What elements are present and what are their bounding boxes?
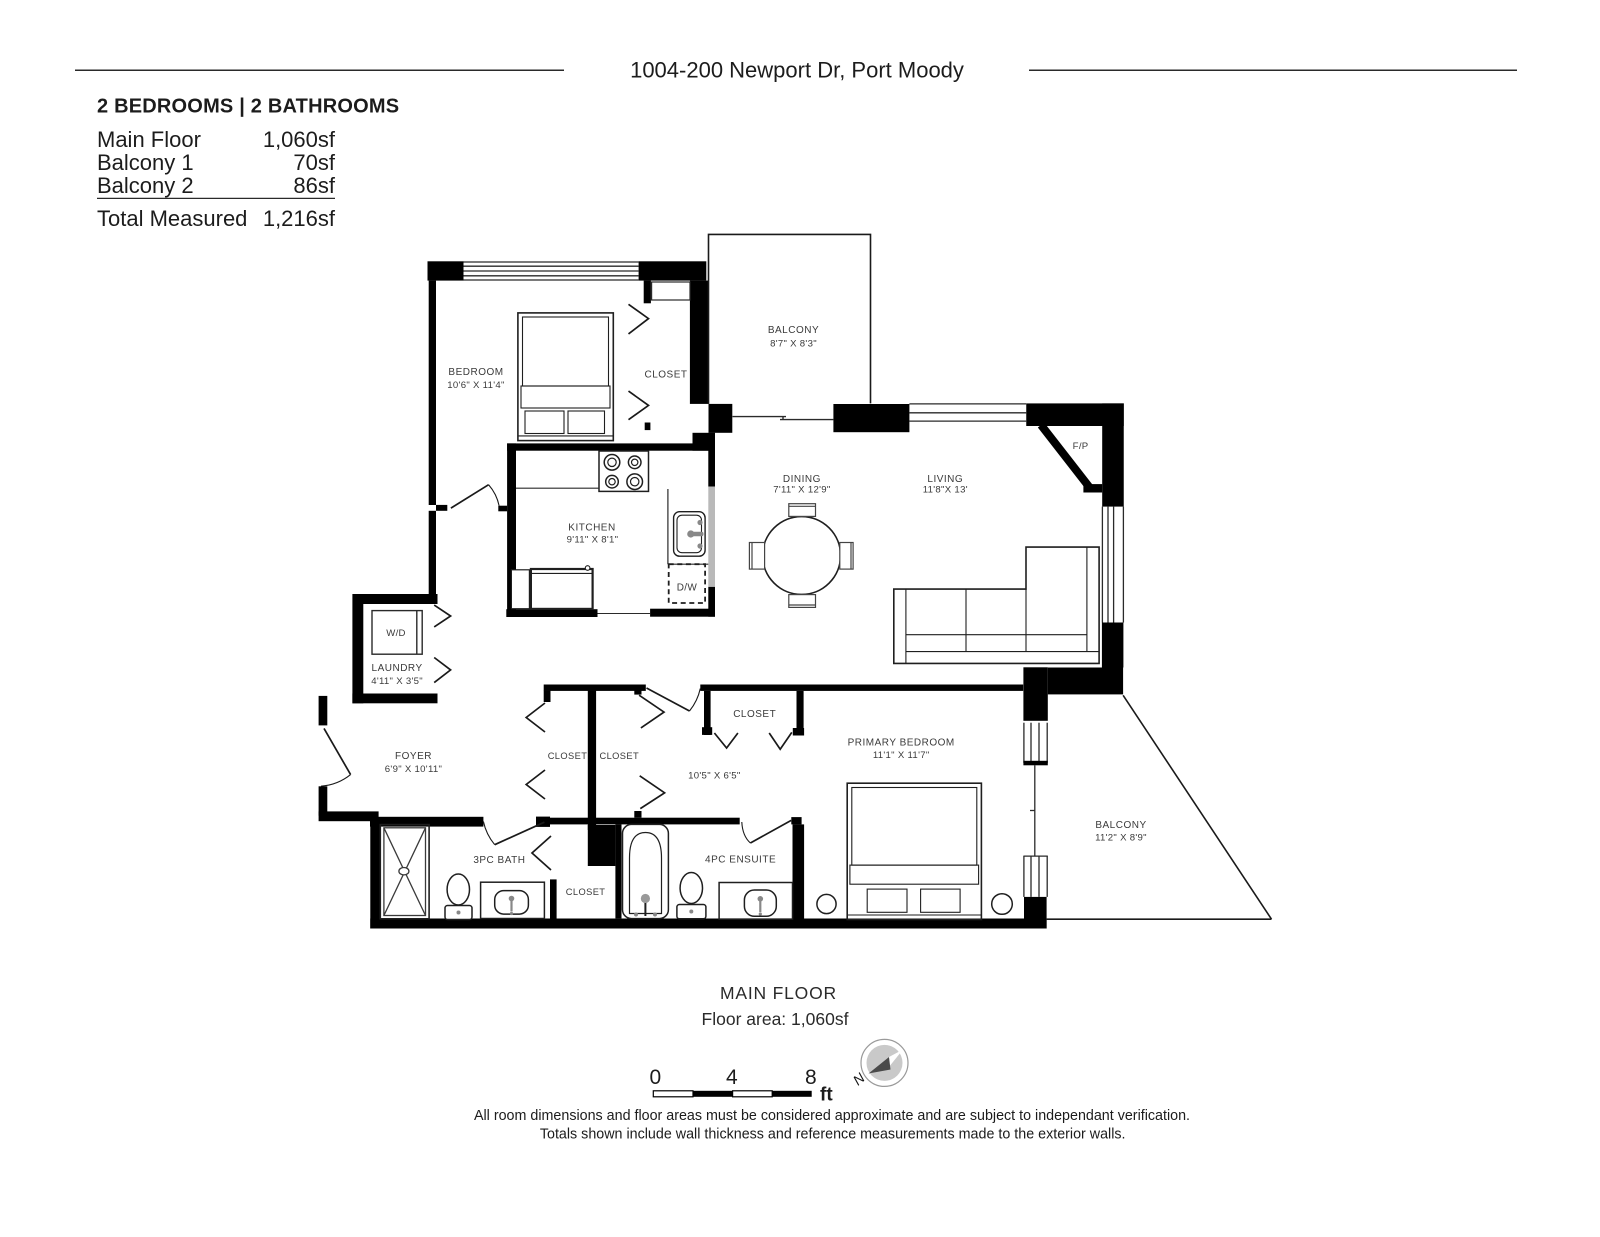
svg-text:Balcony 2: Balcony 2: [97, 173, 194, 198]
svg-text:11'1" X 11'7": 11'1" X 11'7": [873, 750, 930, 761]
svg-text:D/W: D/W: [677, 583, 698, 594]
svg-text:ft: ft: [820, 1085, 833, 1106]
svg-text:1,060sf: 1,060sf: [263, 127, 336, 152]
svg-text:9'11" X 8'1": 9'11" X 8'1": [567, 535, 619, 546]
svg-text:70sf: 70sf: [293, 150, 335, 175]
svg-text:0: 0: [649, 1066, 661, 1089]
svg-text:1004-200 Newport Dr, Port Mood: 1004-200 Newport Dr, Port Moody: [630, 58, 964, 83]
svg-text:Floor area: 1,060sf: Floor area: 1,060sf: [702, 1009, 849, 1029]
svg-text:86sf: 86sf: [293, 173, 335, 198]
svg-text:F/P: F/P: [1073, 441, 1089, 452]
svg-text:Totals shown include wall thic: Totals shown include wall thickness and …: [540, 1127, 1126, 1143]
svg-text:FOYER: FOYER: [395, 751, 432, 762]
svg-text:CLOSET: CLOSET: [733, 709, 776, 720]
svg-text:10'6" X 11'4": 10'6" X 11'4": [447, 380, 504, 391]
svg-text:8: 8: [805, 1066, 817, 1089]
svg-text:All room dimensions and floor: All room dimensions and floor areas must…: [474, 1108, 1190, 1124]
svg-text:11'8"X 13': 11'8"X 13': [923, 484, 968, 495]
svg-text:CLOSET: CLOSET: [548, 751, 588, 761]
svg-text:8'7" X 8'3": 8'7" X 8'3": [770, 339, 817, 350]
svg-text:CLOSET: CLOSET: [599, 751, 639, 761]
svg-text:Main Floor: Main Floor: [97, 127, 201, 152]
svg-text:1,216sf: 1,216sf: [263, 206, 336, 231]
svg-text:3PC BATH: 3PC BATH: [473, 855, 525, 866]
svg-text:BALCONY: BALCONY: [768, 325, 819, 336]
svg-text:W/D: W/D: [386, 628, 406, 639]
svg-text:10'5" X 6'5": 10'5" X 6'5": [688, 771, 740, 782]
svg-text:CLOSET: CLOSET: [566, 887, 606, 897]
svg-text:PRIMARY BEDROOM: PRIMARY BEDROOM: [848, 738, 955, 749]
svg-text:2 BEDROOMS | 2 BATHROOMS: 2 BEDROOMS | 2 BATHROOMS: [97, 96, 399, 118]
svg-text:LAUNDRY: LAUNDRY: [372, 663, 423, 674]
svg-text:KITCHEN: KITCHEN: [568, 523, 615, 534]
svg-text:MAIN FLOOR: MAIN FLOOR: [720, 983, 837, 1003]
svg-text:6'9" X 10'11": 6'9" X 10'11": [385, 764, 442, 775]
svg-text:CLOSET: CLOSET: [644, 370, 687, 381]
svg-text:4PC ENSUITE: 4PC ENSUITE: [705, 855, 776, 866]
svg-text:4: 4: [726, 1066, 738, 1089]
svg-text:BEDROOM: BEDROOM: [448, 367, 503, 378]
svg-text:11'2" X 8'9": 11'2" X 8'9": [1095, 833, 1147, 844]
svg-text:7'11" X 12'9": 7'11" X 12'9": [773, 484, 830, 495]
svg-text:BALCONY: BALCONY: [1095, 820, 1146, 831]
svg-text:4'11" X 3'5": 4'11" X 3'5": [371, 676, 423, 687]
svg-text:Total Measured: Total Measured: [97, 206, 247, 231]
svg-text:Balcony 1: Balcony 1: [97, 150, 194, 175]
